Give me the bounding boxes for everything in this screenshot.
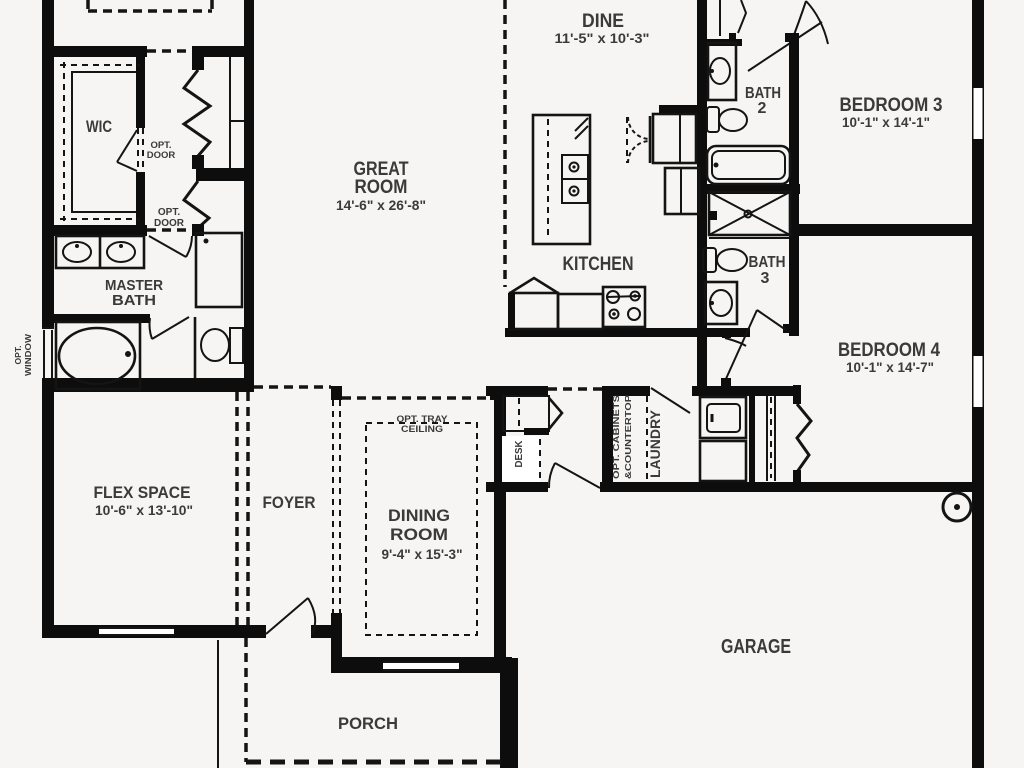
svg-text:&COUNTERTOP: &COUNTERTOP <box>624 394 633 479</box>
svg-text:10'-1" x 14'-1": 10'-1" x 14'-1" <box>842 115 930 130</box>
svg-text:WIC: WIC <box>86 117 112 136</box>
svg-text:FLEX SPACE: FLEX SPACE <box>94 483 191 502</box>
svg-text:ROOM: ROOM <box>390 525 448 544</box>
svg-text:KITCHEN: KITCHEN <box>563 254 634 275</box>
svg-text:11'-5" x 10'-3": 11'-5" x 10'-3" <box>555 31 650 46</box>
svg-text:BEDROOM 3: BEDROOM 3 <box>840 95 943 116</box>
svg-text:DESK: DESK <box>514 440 525 468</box>
svg-text:OPT.: OPT. <box>13 346 23 365</box>
svg-text:14'-6" x 26'-8": 14'-6" x 26'-8" <box>336 198 426 213</box>
svg-text:CEILING: CEILING <box>401 424 443 435</box>
svg-text:BATH: BATH <box>112 292 156 309</box>
svg-text:DINING: DINING <box>388 506 450 525</box>
svg-text:OPT.: OPT. <box>158 207 180 218</box>
svg-text:BATH: BATH <box>749 254 786 271</box>
svg-text:GARAGE: GARAGE <box>721 636 791 658</box>
svg-text:ROOM: ROOM <box>355 177 408 198</box>
svg-text:OPT. CABINETS: OPT. CABINETS <box>612 394 621 479</box>
svg-text:10'-1" x 14'-7": 10'-1" x 14'-7" <box>846 360 934 375</box>
svg-text:BEDROOM 4: BEDROOM 4 <box>838 340 940 361</box>
svg-text:FOYER: FOYER <box>263 493 316 512</box>
svg-text:PORCH: PORCH <box>338 714 398 733</box>
svg-text:DOOR: DOOR <box>147 150 176 161</box>
svg-text:2: 2 <box>758 100 767 117</box>
svg-text:LAUNDRY: LAUNDRY <box>647 409 663 478</box>
svg-text:9'-4" x 15'-3": 9'-4" x 15'-3" <box>382 547 463 562</box>
svg-text:DOOR: DOOR <box>154 218 185 229</box>
svg-text:3: 3 <box>761 270 770 287</box>
svg-text:10'-6" x 13'-10": 10'-6" x 13'-10" <box>95 503 193 518</box>
svg-text:DINE: DINE <box>582 11 624 32</box>
svg-text:WINDOW: WINDOW <box>23 333 33 376</box>
